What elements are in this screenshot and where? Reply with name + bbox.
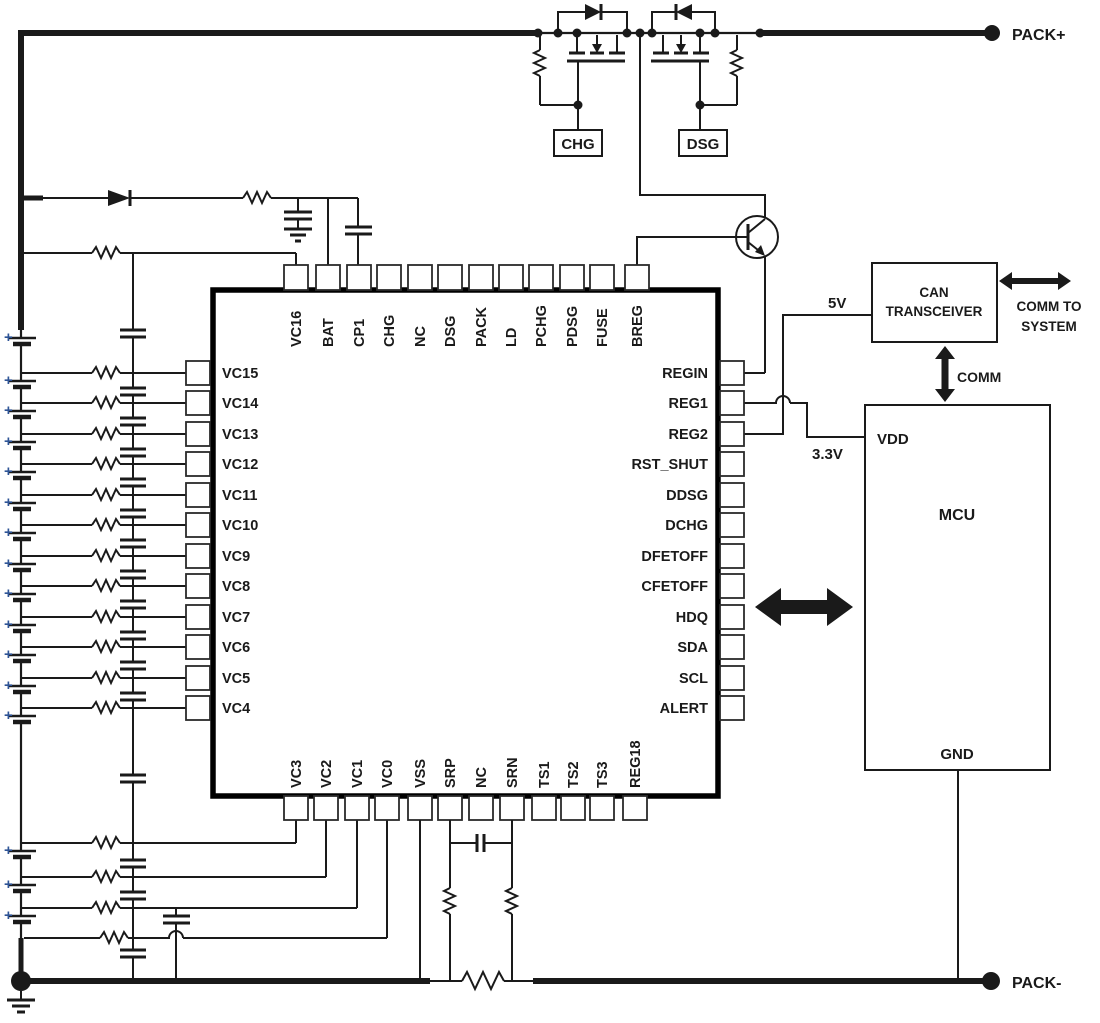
pin-label-bat: BAT [321, 318, 337, 347]
pin-label-ts1: TS1 [537, 761, 553, 788]
pin-label-scl: SCL [679, 671, 708, 687]
can-label-line1: CAN [919, 285, 948, 300]
pin-label-hdq: HDQ [676, 610, 708, 626]
plus-mark: + [4, 402, 13, 419]
plus-mark: + [4, 677, 13, 694]
current-sense-network [420, 820, 517, 981]
comm-to-system-arrow [999, 272, 1071, 290]
pin-label-vc14: VC14 [222, 396, 258, 412]
plus-mark: + [4, 329, 13, 346]
plus-mark: + [4, 433, 13, 450]
plus-mark: + [4, 707, 13, 724]
mcu-box [865, 405, 1050, 770]
plus-mark: + [4, 842, 13, 859]
pin-label-sda: SDA [677, 640, 708, 656]
sense-wires [420, 820, 512, 981]
dsg-net-flag-label: DSG [687, 136, 720, 153]
pin-label-rst-shut: RST_SHUT [631, 457, 708, 473]
pin-label-vc1: VC1 [350, 760, 366, 788]
pin-label-vc3: VC3 [289, 760, 305, 788]
pin-label-ld: LD [504, 328, 520, 347]
pin-label-ddsg: DDSG [666, 488, 708, 504]
bat-bypass-cap [284, 212, 312, 219]
pack-plus-terminal-dot [984, 25, 1000, 41]
srn-filter-resistor [506, 888, 517, 914]
chg-gate-resistor [534, 50, 545, 76]
pin-label-dfetoff: DFETOFF [641, 549, 708, 565]
regulator-wires: 5V 3.3V [744, 295, 872, 463]
comm-to-system-line2: SYSTEM [1021, 319, 1077, 334]
pin-label-ts3: TS3 [595, 761, 611, 788]
pin-label-regin: REGIN [662, 366, 708, 382]
pin-label-vc6: VC6 [222, 640, 250, 656]
pin-label-vss: VSS [413, 759, 429, 788]
plus-mark: + [4, 494, 13, 511]
npn-collector-emitter [748, 219, 765, 254]
pin-label-vc9: VC9 [222, 549, 250, 565]
plus-mark: + [4, 646, 13, 663]
pin-label-vc0: VC0 [380, 760, 396, 788]
pin-label-ts2: TS2 [566, 761, 582, 788]
mcu-block: VDD MCU GND [755, 405, 1050, 981]
chg-body-diode [585, 4, 601, 20]
pin-label-reg1: REG1 [669, 396, 709, 412]
chg-net-flag-label: CHG [561, 136, 594, 153]
pin-label-vc16: VC16 [289, 311, 305, 347]
sense-diff-capacitor [477, 834, 484, 852]
bat-series-resistor [243, 192, 271, 203]
mcu-name-label: MCU [939, 507, 975, 524]
plus-mark: + [4, 555, 13, 572]
pin-label-nc-bottom: NC [474, 767, 490, 788]
pin-label-vc11: VC11 [222, 488, 257, 504]
pin-label-pchg: PCHG [534, 305, 550, 347]
pack-minus-terminal-dot [982, 972, 1000, 990]
pin-label-pack: PACK [474, 306, 490, 347]
pack-minus-rail: PACK- [7, 971, 1061, 1012]
tap-wires-lower [21, 820, 387, 938]
plus-mark: + [4, 585, 13, 602]
shunt-resistor [462, 972, 504, 989]
comm-arrow [935, 346, 955, 402]
plus-mark: + [4, 463, 13, 480]
plus-mark: + [4, 372, 13, 389]
npn-emitter-arrow [755, 245, 765, 256]
ground-symbol [7, 1000, 35, 1012]
pack-minus-label: PACK- [1012, 975, 1061, 992]
pin-label-dchg: DCHG [665, 518, 708, 534]
afe-ic: VC16 BAT CP1 CHG NC DSG PACK LD PCHG PDS… [186, 265, 744, 820]
reg1-to-mcu-wire [744, 396, 865, 437]
cp1-capacitor [345, 227, 372, 234]
pin-label-dsg: DSG [443, 316, 459, 347]
plus-mark: + [4, 876, 13, 893]
dsg-gate-wires [700, 35, 737, 130]
pin-label-vc7: VC7 [222, 610, 250, 626]
bat-diode [108, 190, 130, 206]
pin-label-vc5: VC5 [222, 671, 250, 687]
vc1-bypass-cap [163, 916, 190, 923]
schematic-page: PACK+ PACK- + + + + + + + + + + + + + [0, 0, 1100, 1023]
pin-label-cfetoff: CFETOFF [641, 579, 708, 595]
mcu-vdd-label: VDD [877, 431, 909, 448]
bat-wires [43, 198, 358, 265]
pin-label-reg2: REG2 [669, 427, 709, 443]
bat-cap-ground-symbol [284, 229, 312, 241]
dsg-gate-resistor [731, 50, 742, 76]
battery-stack: + + + + + + + + + + + + + + + + [4, 329, 36, 975]
comm-to-system-line1: COMM TO [1017, 299, 1082, 314]
tap-series-resistors [92, 247, 128, 943]
chg-gate-wires [540, 35, 578, 130]
dsg-body-diode [676, 4, 692, 20]
pin-label-vc10: VC10 [222, 518, 258, 534]
ic-mcu-data-arrow [755, 588, 853, 626]
mcu-gnd-label: GND [940, 746, 974, 763]
pin-label-reg18: REG18 [628, 740, 644, 788]
pin-label-vc12: VC12 [222, 457, 258, 473]
protection-fets: CHG DSG [534, 4, 765, 156]
pin-label-chg: CHG [382, 315, 398, 347]
pin-label-pdsg: PDSG [565, 306, 581, 347]
pin-label-vc15: VC15 [222, 366, 258, 382]
cell-plus-marks: + + + + + + + + + + + + + + + + [4, 329, 13, 924]
bms-schematic: PACK+ PACK- + + + + + + + + + + + + + [0, 0, 1100, 1023]
plus-mark: + [4, 907, 13, 924]
emitter-to-regin-wire [744, 256, 765, 373]
pin-label-vc8: VC8 [222, 579, 250, 595]
pin-label-cp1: CP1 [352, 319, 368, 347]
pin-label-vc4: VC4 [222, 701, 250, 717]
pin-label-breg: BREG [630, 305, 646, 347]
v33-label: 3.3V [812, 446, 843, 463]
srp-filter-resistor [444, 888, 455, 914]
pin-label-vc2: VC2 [319, 760, 335, 788]
pin-label-nc-top: NC [413, 326, 429, 347]
can-transceiver: CAN TRANSCEIVER COMM TO SYSTEM COMM [872, 263, 1082, 402]
can-label-line2: TRANSCEIVER [886, 304, 983, 319]
plus-mark: + [4, 616, 13, 633]
pack-plus-label: PACK+ [1012, 27, 1066, 44]
pin-label-fuse: FUSE [595, 308, 611, 347]
can-transceiver-box [872, 263, 997, 342]
pin-label-alert: ALERT [660, 701, 708, 717]
rail-junction-dots [534, 29, 765, 110]
pin-label-vc13: VC13 [222, 427, 258, 443]
comm-label: COMM [957, 369, 1001, 385]
breg-base-wire [637, 237, 748, 265]
pin-label-srn: SRN [505, 757, 521, 788]
ic-body [213, 290, 718, 796]
pin-label-srp: SRP [443, 758, 459, 788]
v5-label: 5V [828, 295, 846, 312]
plus-mark: + [4, 524, 13, 541]
